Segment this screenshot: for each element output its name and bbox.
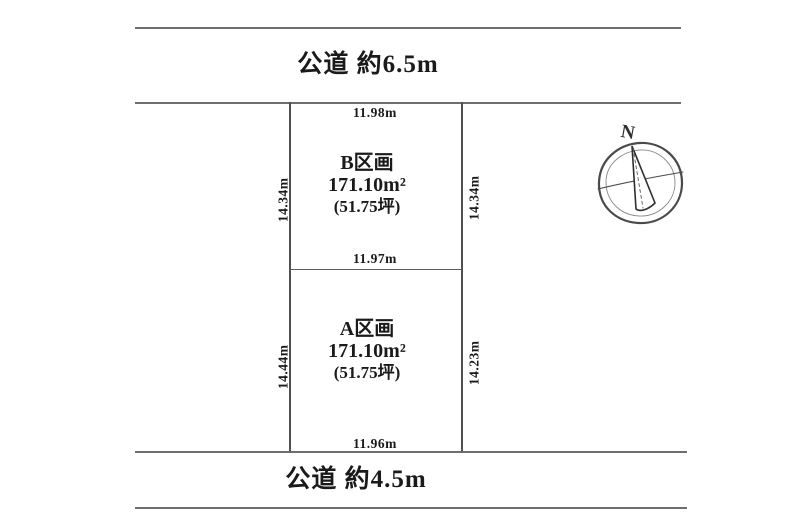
bottom-road-label: 公道 約4.5m bbox=[226, 467, 486, 492]
plot-b-label: B区画 171.10m² (51.75坪) bbox=[281, 153, 453, 215]
plot-b-bottom-dimension: 11.97m bbox=[289, 252, 461, 266]
plot-b-top-dimension: 11.98m bbox=[289, 106, 461, 120]
plot-b-area-m2: 171.10m² bbox=[281, 175, 453, 195]
plot-b-right-dimension: 14.34m bbox=[467, 168, 481, 228]
bottom-road-lower-line bbox=[135, 507, 687, 509]
plot-a-right-dimension: 14.23m bbox=[467, 333, 481, 393]
bottom-road-upper-line bbox=[135, 451, 687, 453]
plot-b-left-dimension: 14.34m bbox=[276, 170, 290, 230]
top-road-label: 公道 約6.5m bbox=[238, 52, 498, 77]
plot-a-bottom-dimension: 11.96m bbox=[289, 437, 461, 451]
plot-divider-line bbox=[289, 269, 462, 270]
top-road-lower-line bbox=[135, 102, 681, 104]
plot-b-name: B区画 bbox=[281, 153, 453, 173]
plot-a-left-dimension: 14.44m bbox=[276, 337, 290, 397]
plot-a-name: A区画 bbox=[281, 319, 453, 339]
compass-icon: N bbox=[592, 120, 688, 230]
plot-a-area-m2: 171.10m² bbox=[281, 341, 453, 361]
land-plot-diagram: 公道 約6.5m 公道 約4.5m 11.98m B区画 171.10m² (5… bbox=[0, 0, 800, 531]
plot-b-area-tsubo: (51.75坪) bbox=[281, 198, 453, 215]
compass-north-label: N bbox=[619, 121, 636, 144]
top-road-upper-line bbox=[135, 27, 681, 29]
plot-a-label: A区画 171.10m² (51.75坪) bbox=[281, 319, 453, 381]
plot-a-area-tsubo: (51.75坪) bbox=[281, 364, 453, 381]
plot-right-boundary-line bbox=[461, 102, 463, 452]
